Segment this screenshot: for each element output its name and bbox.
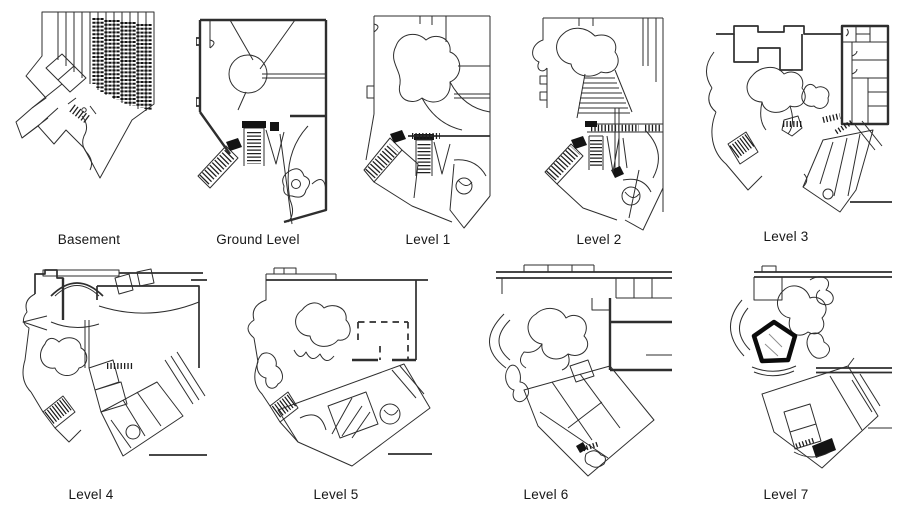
floor-plan-label-level-1: Level 1 (367, 232, 489, 248)
floor-plan-drawing-level-5 (240, 266, 432, 472)
floor-plan-label-ground-level: Ground Level (197, 232, 319, 248)
floor-plan-label-basement: Basement (28, 232, 150, 248)
floor-plan-drawing-level-7 (724, 264, 892, 476)
floor-plan-label-level-4: Level 4 (30, 487, 152, 503)
floor-plan-drawing-level-2 (527, 12, 669, 232)
floor-plan-label-level-2: Level 2 (538, 232, 660, 248)
floor-plan-drawing-level-1 (362, 12, 500, 230)
floor-plan-drawing-level-6 (476, 262, 672, 480)
floor-plan-label-level-3: Level 3 (725, 229, 847, 245)
floor-plan-label-level-6: Level 6 (485, 487, 607, 503)
floor-plan-drawing-level-4 (15, 264, 207, 468)
floor-plans-figure: Basement Ground Level Level 1 Level 2 Le… (0, 0, 906, 514)
floor-plan-drawing-ground-level (196, 14, 336, 226)
floor-plan-drawing-level-3 (700, 12, 892, 226)
floor-plan-label-level-7: Level 7 (725, 487, 847, 503)
floor-plan-drawing-basement (12, 8, 162, 188)
floor-plan-label-level-5: Level 5 (275, 487, 397, 503)
